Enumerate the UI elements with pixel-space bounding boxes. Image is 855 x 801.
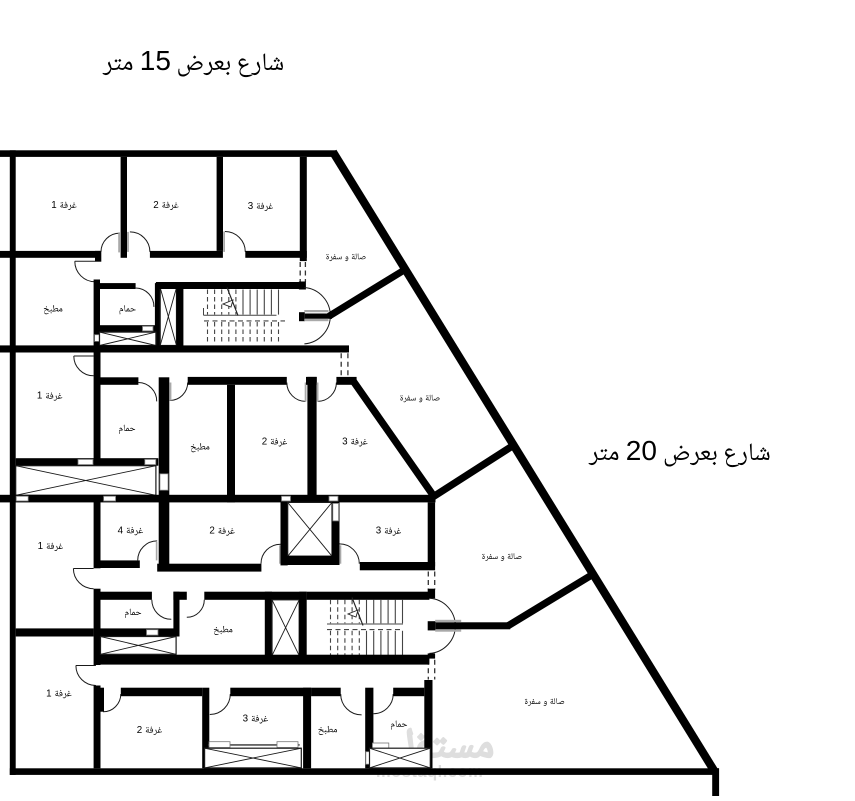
svg-text:20: 20: [626, 435, 657, 466]
svg-text:1: 1: [37, 391, 42, 402]
svg-text:2: 2: [209, 526, 214, 537]
svg-text:3: 3: [376, 526, 382, 537]
svg-text:3: 3: [342, 437, 348, 448]
svg-text:15: 15: [140, 45, 171, 76]
svg-text:4: 4: [118, 525, 124, 536]
svg-text:2: 2: [153, 200, 158, 211]
svg-text:1: 1: [51, 200, 56, 211]
svg-text:2: 2: [137, 725, 142, 736]
svg-text:1: 1: [38, 541, 43, 552]
svg-text:3: 3: [243, 714, 249, 725]
svg-text:1: 1: [46, 688, 51, 699]
svg-text:3: 3: [248, 201, 254, 212]
svg-text:2: 2: [262, 437, 267, 448]
